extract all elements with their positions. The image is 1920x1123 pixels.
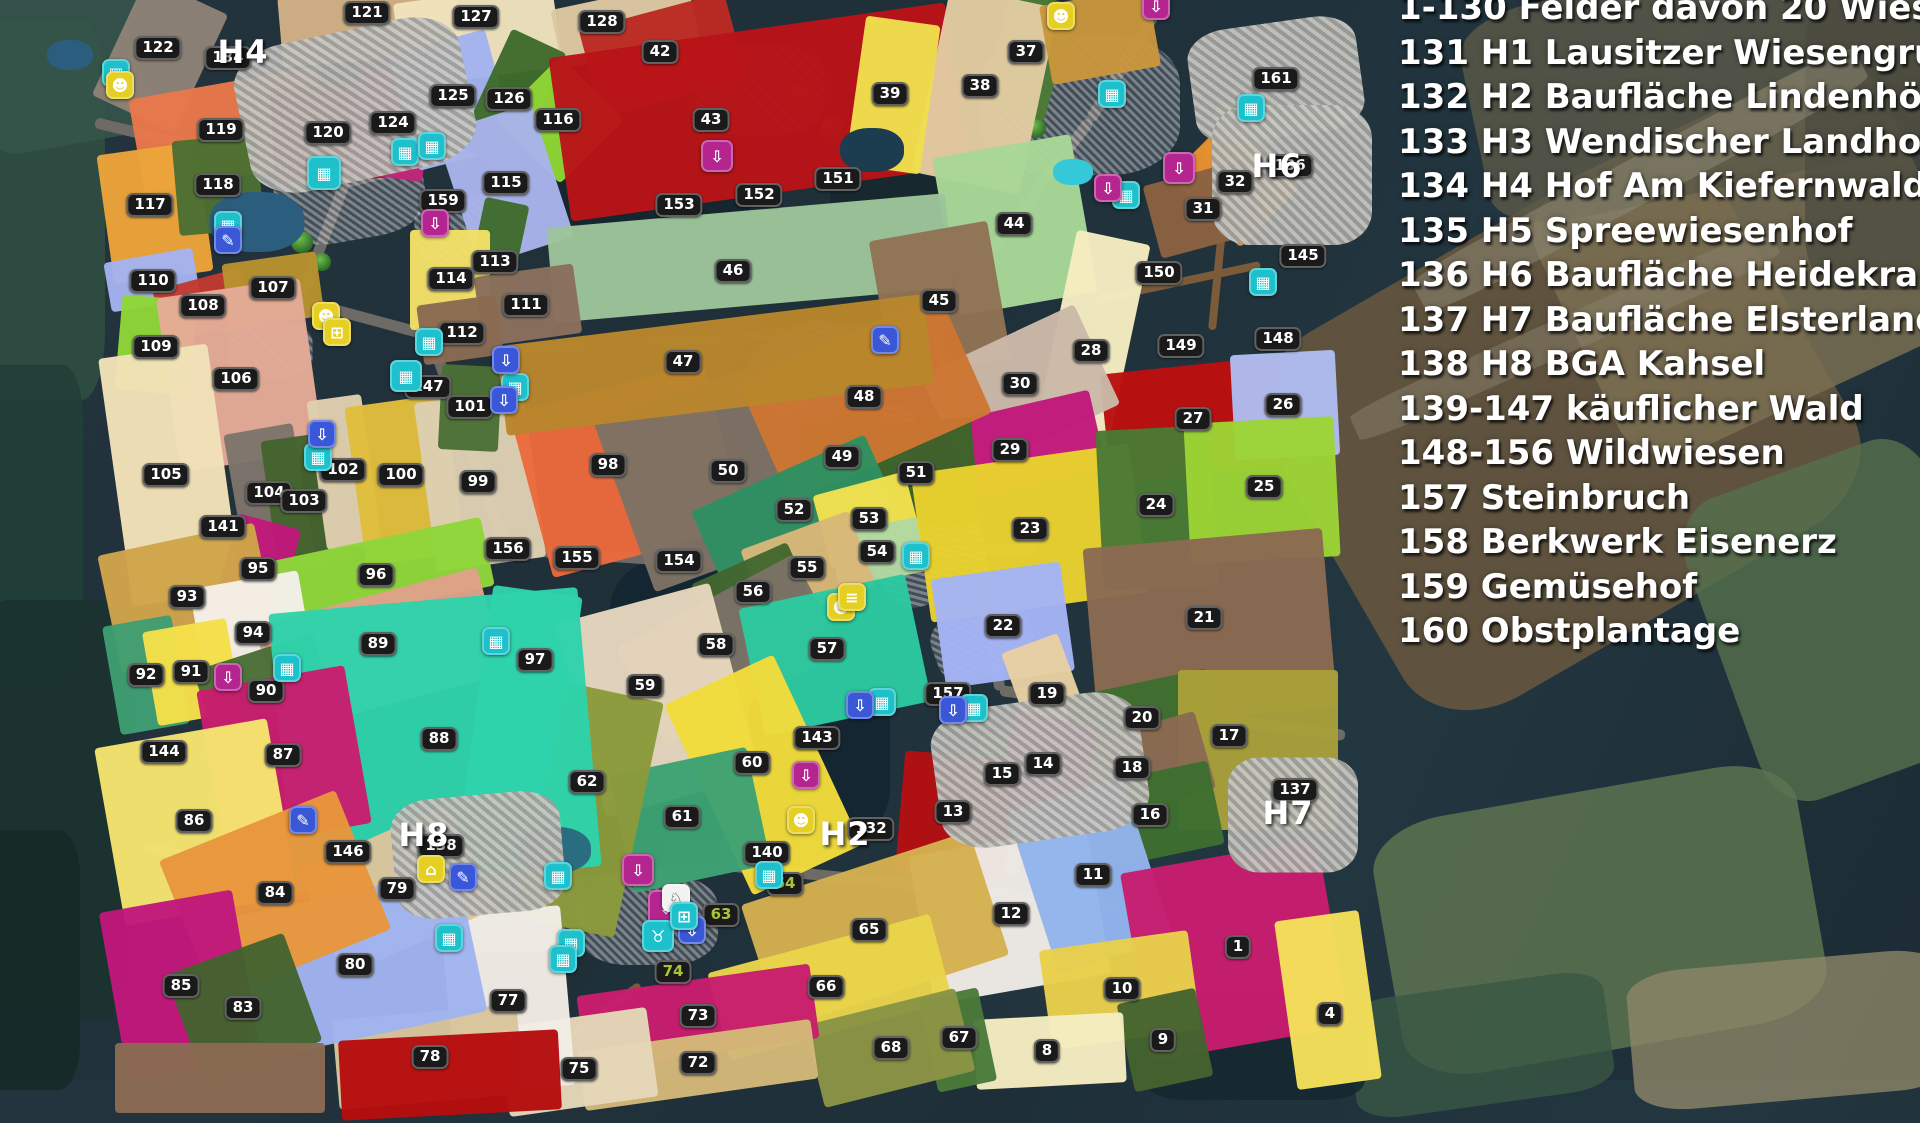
- field-badge-79[interactable]: 79: [379, 877, 416, 901]
- unload-icon[interactable]: ⇩: [421, 209, 449, 237]
- field-badge-48[interactable]: 48: [846, 385, 883, 409]
- field-badge-87[interactable]: 87: [265, 743, 302, 767]
- field-badge-124[interactable]: 124: [369, 111, 416, 135]
- field-badge-93[interactable]: 93: [169, 585, 206, 609]
- field-badge-105[interactable]: 105: [142, 463, 189, 487]
- field-badge-51[interactable]: 51: [898, 461, 935, 485]
- field-badge-27[interactable]: 27: [1175, 407, 1212, 431]
- legend-item: 133 H3 Wendischer Landhof: [1398, 120, 1920, 165]
- field-area[interactable]: [115, 1043, 325, 1113]
- field-badge-128[interactable]: 128: [578, 10, 625, 34]
- lines-icon[interactable]: ≡: [838, 583, 866, 611]
- field-badge-9[interactable]: 9: [1150, 1028, 1176, 1052]
- pond: [1053, 159, 1093, 185]
- farmyard-gravel: [388, 788, 568, 922]
- field-badge-30[interactable]: 30: [1002, 372, 1039, 396]
- field-badge-112[interactable]: 112: [438, 321, 485, 345]
- field-badge-23[interactable]: 23: [1012, 517, 1049, 541]
- field-badge-10[interactable]: 10: [1104, 977, 1141, 1001]
- field-badge-148[interactable]: 148: [1254, 327, 1301, 351]
- legend-item: 135 H5 Spreewiesenhof: [1398, 209, 1920, 254]
- legend-item: 160 Obstplantage: [1398, 609, 1920, 654]
- field-badge-65[interactable]: 65: [851, 918, 888, 942]
- cow-icon[interactable]: ♉: [642, 920, 674, 952]
- factory-icon[interactable]: ▦: [415, 328, 443, 356]
- unload-icon[interactable]: ⇩: [1094, 174, 1122, 202]
- field-badge-17[interactable]: 17: [1211, 724, 1248, 748]
- field-badge-66[interactable]: 66: [808, 975, 845, 999]
- field-badge-20[interactable]: 20: [1124, 706, 1161, 730]
- field-badge-13[interactable]: 13: [935, 800, 972, 824]
- field-badge-94[interactable]: 94: [235, 621, 272, 645]
- factory-icon[interactable]: ▦: [902, 542, 930, 570]
- field-badge-83[interactable]: 83: [225, 996, 262, 1020]
- field-badge-143[interactable]: 143: [793, 726, 840, 750]
- field-badge-38[interactable]: 38: [962, 74, 999, 98]
- field-badge-56[interactable]: 56: [735, 580, 772, 604]
- field-badge-149[interactable]: 149: [1157, 334, 1204, 358]
- field-badge-75[interactable]: 75: [561, 1057, 598, 1081]
- field-badge-39[interactable]: 39: [872, 82, 909, 106]
- field-badge-113[interactable]: 113: [471, 250, 518, 274]
- field-badge-97[interactable]: 97: [517, 648, 554, 672]
- field-badge-154[interactable]: 154: [655, 549, 702, 573]
- legend-panel: 1-130 Felder davon 20 Wiesen131 H1 Lausi…: [1398, 0, 1920, 654]
- field-badge-99[interactable]: 99: [460, 470, 497, 494]
- field-badge-46[interactable]: 46: [715, 259, 752, 283]
- download-icon[interactable]: ⇩: [939, 696, 967, 724]
- field-badge-126[interactable]: 126: [485, 87, 532, 111]
- field-badge-22[interactable]: 22: [985, 614, 1022, 638]
- field-badge-26[interactable]: 26: [1265, 393, 1302, 417]
- field-badge-44[interactable]: 44: [996, 212, 1033, 236]
- cart-icon[interactable]: ⊞: [670, 902, 698, 930]
- field-badge-101[interactable]: 101: [446, 395, 493, 419]
- field-badge-55[interactable]: 55: [789, 556, 826, 580]
- factory-icon[interactable]: ▦: [549, 945, 577, 973]
- legend-item: 137 H7 Baufläche Elsterland: [1398, 298, 1920, 343]
- legend-item: 1-130 Felder davon 20 Wiesen: [1398, 0, 1920, 31]
- download-icon[interactable]: ⇩: [492, 346, 520, 374]
- field-badge-88[interactable]: 88: [421, 727, 458, 751]
- field-badge-118[interactable]: 118: [194, 173, 241, 197]
- unload-icon[interactable]: ⇩: [1142, 0, 1170, 20]
- field-badge-73[interactable]: 73: [680, 1004, 717, 1028]
- field-badge-90[interactable]: 90: [248, 679, 285, 703]
- field-badge-114[interactable]: 114: [427, 267, 474, 291]
- terrain-patch: [1343, 967, 1617, 1122]
- field-badge-155[interactable]: 155: [553, 546, 600, 570]
- legend-item: 138 H8 BGA Kahsel: [1398, 342, 1920, 387]
- legend-item: 139-147 käuflicher Wald: [1398, 387, 1920, 432]
- field-badge-74[interactable]: 74: [655, 960, 692, 984]
- factory-icon[interactable]: ▦: [1098, 80, 1126, 108]
- factory-icon[interactable]: ▦: [435, 924, 463, 952]
- doc-icon[interactable]: ✎: [449, 863, 477, 891]
- unload-icon[interactable]: ⇩: [1163, 152, 1195, 184]
- legend-item: 131 H1 Lausitzer Wiesengrund: [1398, 31, 1920, 76]
- field-badge-153[interactable]: 153: [655, 193, 702, 217]
- place-label-h8: H8: [398, 816, 449, 854]
- field-badge-122[interactable]: 122: [134, 36, 181, 60]
- field-badge-150[interactable]: 150: [1135, 261, 1182, 285]
- field-badge-141[interactable]: 141: [199, 515, 246, 539]
- field-badge-57[interactable]: 57: [809, 637, 846, 661]
- field-badge-50[interactable]: 50: [710, 459, 747, 483]
- field-badge-144[interactable]: 144: [140, 740, 187, 764]
- field-badge-103[interactable]: 103: [280, 489, 327, 513]
- field-badge-4[interactable]: 4: [1317, 1002, 1343, 1026]
- field-badge-84[interactable]: 84: [257, 881, 294, 905]
- field-badge-37[interactable]: 37: [1008, 40, 1045, 64]
- download-icon[interactable]: ⇩: [490, 386, 518, 414]
- pond: [47, 40, 93, 70]
- house-icon[interactable]: ⌂: [417, 855, 445, 883]
- field-badge-92[interactable]: 92: [128, 663, 165, 687]
- field-area[interactable]: [338, 1029, 562, 1120]
- field-badge-31[interactable]: 31: [1185, 197, 1222, 221]
- field-badge-145[interactable]: 145: [1279, 244, 1326, 268]
- field-badge-32[interactable]: 32: [1217, 170, 1254, 194]
- pond: [840, 128, 904, 172]
- place-label-h2: H2: [819, 815, 870, 853]
- field-badge-61[interactable]: 61: [664, 805, 701, 829]
- field-badge-106[interactable]: 106: [212, 367, 259, 391]
- place-label-h6: H6: [1251, 147, 1302, 185]
- field-badge-53[interactable]: 53: [851, 507, 888, 531]
- field-badge-111[interactable]: 111: [502, 293, 549, 317]
- field-badge-24[interactable]: 24: [1138, 493, 1175, 517]
- field-badge-1[interactable]: 1: [1225, 935, 1251, 959]
- field-badge-107[interactable]: 107: [249, 276, 296, 300]
- factory-icon[interactable]: ▦: [391, 138, 419, 166]
- field-badge-146[interactable]: 146: [324, 840, 371, 864]
- field-badge-29[interactable]: 29: [992, 438, 1029, 462]
- unload-icon[interactable]: ⇩: [701, 140, 733, 172]
- field-badge-116[interactable]: 116: [534, 108, 581, 132]
- field-badge-28[interactable]: 28: [1073, 339, 1110, 363]
- place-label-h4: H4: [217, 33, 268, 71]
- terrain-patch: [0, 830, 80, 1090]
- field-badge-11[interactable]: 11: [1075, 863, 1112, 887]
- field-badge-91[interactable]: 91: [173, 660, 210, 684]
- field-badge-89[interactable]: 89: [360, 632, 397, 656]
- field-badge-121[interactable]: 121: [343, 1, 390, 25]
- field-badge-108[interactable]: 108: [179, 294, 226, 318]
- download-icon[interactable]: ⇩: [846, 691, 874, 719]
- field-badge-25[interactable]: 25: [1246, 475, 1283, 499]
- doc-icon[interactable]: ✎: [871, 326, 899, 354]
- legend-item: 157 Steinbruch: [1398, 476, 1920, 521]
- doc-icon[interactable]: ✎: [214, 226, 242, 254]
- field-badge-14[interactable]: 14: [1025, 752, 1062, 776]
- field-badge-98[interactable]: 98: [590, 453, 627, 477]
- download-icon[interactable]: ⇩: [308, 420, 336, 448]
- field-badge-18[interactable]: 18: [1114, 756, 1151, 780]
- field-badge-63[interactable]: 63: [703, 903, 740, 927]
- field-badge-151[interactable]: 151: [814, 167, 861, 191]
- factory-icon[interactable]: ▦: [1249, 268, 1277, 296]
- field-badge-80[interactable]: 80: [337, 953, 374, 977]
- person-icon[interactable]: ☻: [1047, 2, 1075, 30]
- field-badge-156[interactable]: 156: [484, 537, 531, 561]
- field-badge-12[interactable]: 12: [993, 902, 1030, 926]
- doc-icon[interactable]: ✎: [289, 806, 317, 834]
- factory-icon[interactable]: ▦: [544, 862, 572, 890]
- field-badge-110[interactable]: 110: [129, 269, 176, 293]
- factory-icon[interactable]: ▦: [755, 861, 783, 889]
- field-badge-85[interactable]: 85: [163, 974, 200, 998]
- field-badge-21[interactable]: 21: [1186, 606, 1223, 630]
- legend-item: 159 Gemüsehof: [1398, 565, 1920, 610]
- legend-item: 132 H2 Baufläche Lindenhöhe: [1398, 75, 1920, 120]
- field-badge-47[interactable]: 47: [665, 350, 702, 374]
- field-badge-100[interactable]: 100: [377, 463, 424, 487]
- field-badge-119[interactable]: 119: [197, 118, 244, 142]
- factory-icon[interactable]: ▦: [418, 132, 446, 160]
- factory-icon[interactable]: ▦: [307, 156, 341, 190]
- field-badge-15[interactable]: 15: [984, 762, 1021, 786]
- place-label-h7: H7: [1262, 794, 1313, 832]
- factory-icon[interactable]: ▦: [273, 654, 301, 682]
- field-badge-42[interactable]: 42: [642, 40, 679, 64]
- field-badge-115[interactable]: 115: [482, 171, 529, 195]
- legend-item: 158 Berkwerk Eisenerz: [1398, 520, 1920, 565]
- field-badge-127[interactable]: 127: [452, 5, 499, 29]
- field-badge-62[interactable]: 62: [569, 770, 606, 794]
- field-badge-96[interactable]: 96: [358, 563, 395, 587]
- field-badge-60[interactable]: 60: [734, 751, 771, 775]
- field-badge-120[interactable]: 120: [304, 121, 351, 145]
- field-badge-77[interactable]: 77: [490, 989, 527, 1013]
- unload-icon[interactable]: ⇩: [214, 663, 242, 691]
- field-badge-117[interactable]: 117: [126, 193, 173, 217]
- field-badge-86[interactable]: 86: [176, 809, 213, 833]
- field-badge-67[interactable]: 67: [941, 1026, 978, 1050]
- legend-item: 134 H4 Hof Am Kiefernwald: [1398, 164, 1920, 209]
- person-icon[interactable]: ☻: [106, 71, 134, 99]
- factory-icon[interactable]: ▦: [390, 360, 422, 392]
- field-badge-19[interactable]: 19: [1029, 682, 1066, 706]
- field-badge-161[interactable]: 161: [1252, 67, 1299, 91]
- field-badge-52[interactable]: 52: [776, 498, 813, 522]
- legend-item: 136 H6 Baufläche Heidekraut: [1398, 253, 1920, 298]
- field-badge-16[interactable]: 16: [1132, 803, 1169, 827]
- unload-icon[interactable]: ⇩: [792, 761, 820, 789]
- factory-icon[interactable]: ▦: [1237, 94, 1265, 122]
- cart-icon[interactable]: ⊞: [323, 318, 351, 346]
- terrain-patch: [1625, 946, 1920, 1113]
- field-badge-95[interactable]: 95: [240, 557, 277, 581]
- unload-icon[interactable]: ⇩: [622, 854, 654, 886]
- field-badge-8[interactable]: 8: [1034, 1039, 1060, 1063]
- field-badge-45[interactable]: 45: [921, 289, 958, 313]
- field-badge-43[interactable]: 43: [693, 108, 730, 132]
- field-badge-68[interactable]: 68: [873, 1036, 910, 1060]
- field-badge-49[interactable]: 49: [824, 445, 861, 469]
- field-badge-125[interactable]: 125: [429, 84, 476, 108]
- person-icon[interactable]: ☻: [787, 806, 815, 834]
- field-badge-72[interactable]: 72: [680, 1051, 717, 1075]
- field-badge-58[interactable]: 58: [698, 633, 735, 657]
- field-badge-109[interactable]: 109: [132, 335, 179, 359]
- legend-item: 148-156 Wildwiesen: [1398, 431, 1920, 476]
- field-badge-54[interactable]: 54: [859, 540, 896, 564]
- factory-icon[interactable]: ▦: [482, 627, 510, 655]
- field-badge-152[interactable]: 152: [735, 183, 782, 207]
- field-badge-78[interactable]: 78: [412, 1045, 449, 1069]
- field-badge-59[interactable]: 59: [627, 674, 664, 698]
